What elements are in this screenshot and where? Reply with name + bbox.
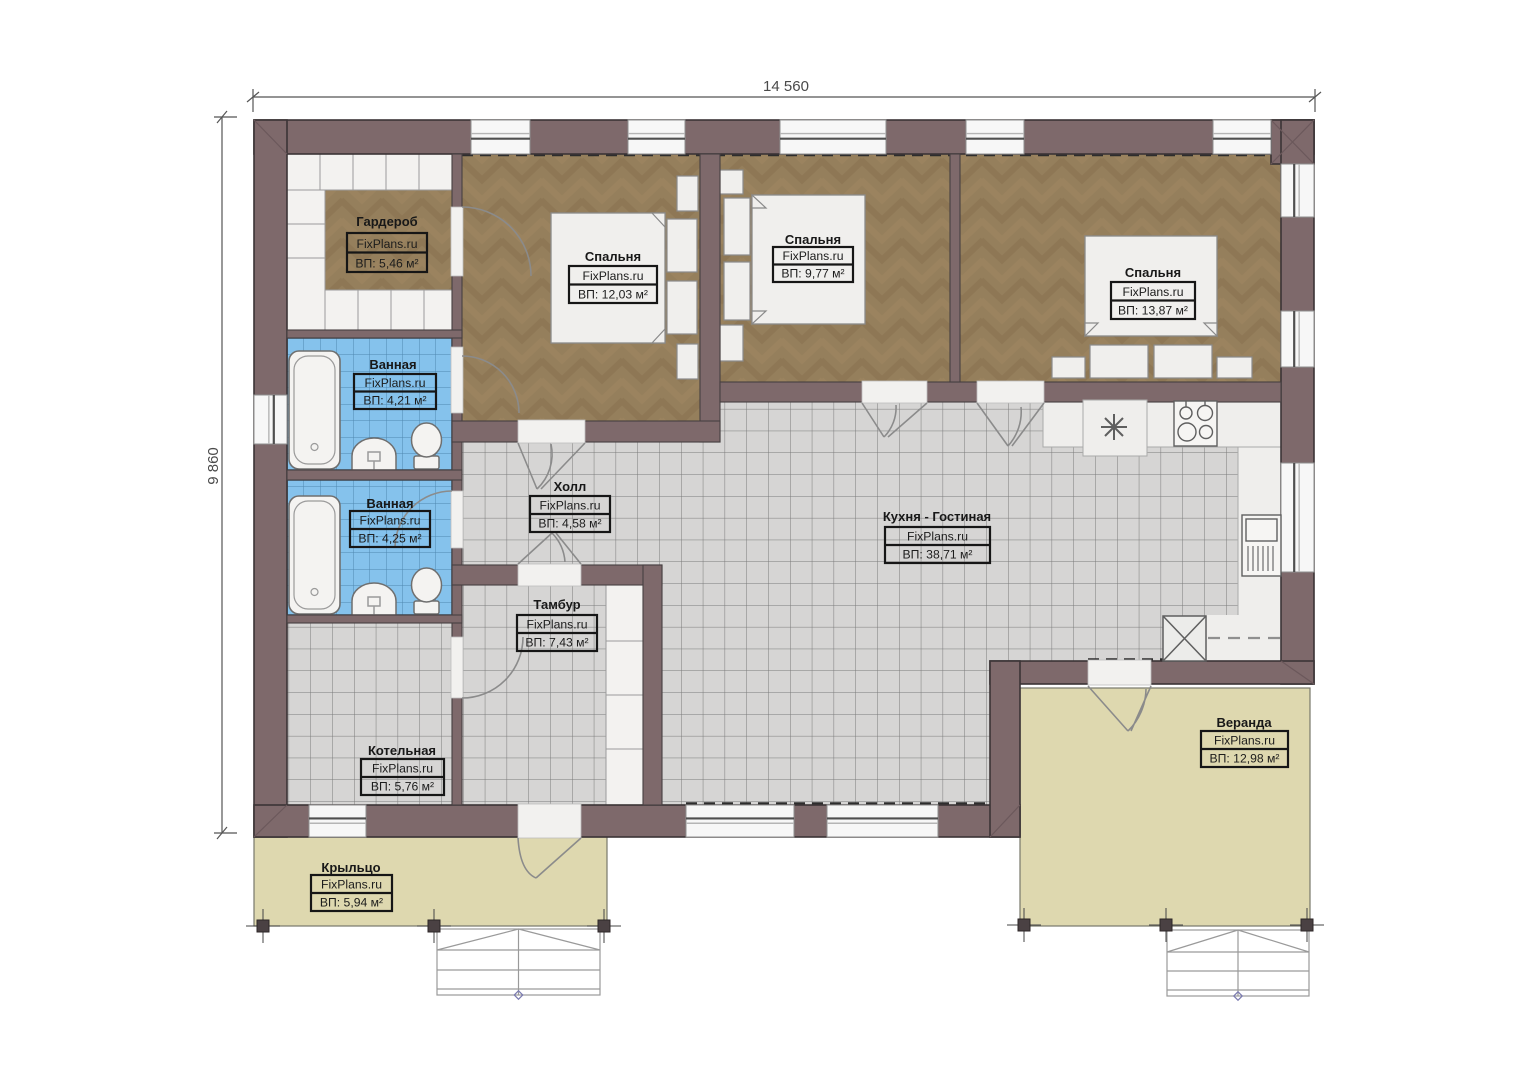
svg-text:Гардероб: Гардероб [356, 214, 417, 229]
svg-text:14 560: 14 560 [763, 78, 809, 95]
svg-text:Холл: Холл [554, 479, 587, 494]
svg-text:ВП: 4,58 м²: ВП: 4,58 м² [538, 517, 601, 531]
svg-text:ВП: 5,94 м²: ВП: 5,94 м² [320, 896, 383, 910]
svg-text:ВП: 5,76 м²: ВП: 5,76 м² [371, 780, 434, 794]
svg-text:FixPlans.ru: FixPlans.ru [907, 530, 968, 544]
svg-text:ВП: 4,21 м²: ВП: 4,21 м² [363, 394, 426, 408]
svg-text:ВП: 12,03 м²: ВП: 12,03 м² [578, 288, 648, 302]
svg-text:ВП: 13,87 м²: ВП: 13,87 м² [1118, 304, 1188, 318]
svg-text:ВП: 38,71 м²: ВП: 38,71 м² [903, 548, 973, 562]
svg-text:FixPlans.ru: FixPlans.ru [321, 878, 382, 892]
svg-text:Спальня: Спальня [585, 249, 641, 264]
svg-text:FixPlans.ru: FixPlans.ru [1214, 734, 1275, 748]
svg-text:ВП: 7,43 м²: ВП: 7,43 м² [525, 636, 588, 650]
svg-text:ВП: 4,25 м²: ВП: 4,25 м² [358, 532, 421, 546]
svg-text:Котельная: Котельная [368, 743, 436, 758]
svg-text:FixPlans.ru: FixPlans.ru [540, 499, 601, 513]
svg-text:FixPlans.ru: FixPlans.ru [372, 762, 433, 776]
svg-text:Ванная: Ванная [369, 357, 416, 372]
svg-text:FixPlans.ru: FixPlans.ru [1123, 285, 1184, 299]
svg-text:9 860: 9 860 [205, 447, 222, 485]
svg-text:FixPlans.ru: FixPlans.ru [357, 237, 418, 251]
svg-text:ВП: 9,77 м²: ВП: 9,77 м² [781, 267, 844, 281]
svg-text:Спальня: Спальня [785, 232, 841, 247]
svg-text:Ванная: Ванная [366, 496, 413, 511]
svg-text:FixPlans.ru: FixPlans.ru [365, 376, 426, 390]
svg-text:Кухня - Гостиная: Кухня - Гостиная [883, 509, 991, 524]
svg-text:ВП: 5,46 м²: ВП: 5,46 м² [355, 257, 418, 271]
svg-text:FixPlans.ru: FixPlans.ru [360, 514, 421, 528]
svg-text:Крыльцо: Крыльцо [321, 860, 380, 875]
svg-text:ВП: 12,98 м²: ВП: 12,98 м² [1210, 752, 1280, 766]
svg-text:FixPlans.ru: FixPlans.ru [583, 269, 644, 283]
svg-text:Тамбур: Тамбур [533, 597, 580, 612]
svg-text:Веранда: Веранда [1216, 715, 1272, 730]
svg-text:FixPlans.ru: FixPlans.ru [527, 618, 588, 632]
svg-text:Спальня: Спальня [1125, 265, 1181, 280]
svg-text:FixPlans.ru: FixPlans.ru [783, 249, 844, 263]
